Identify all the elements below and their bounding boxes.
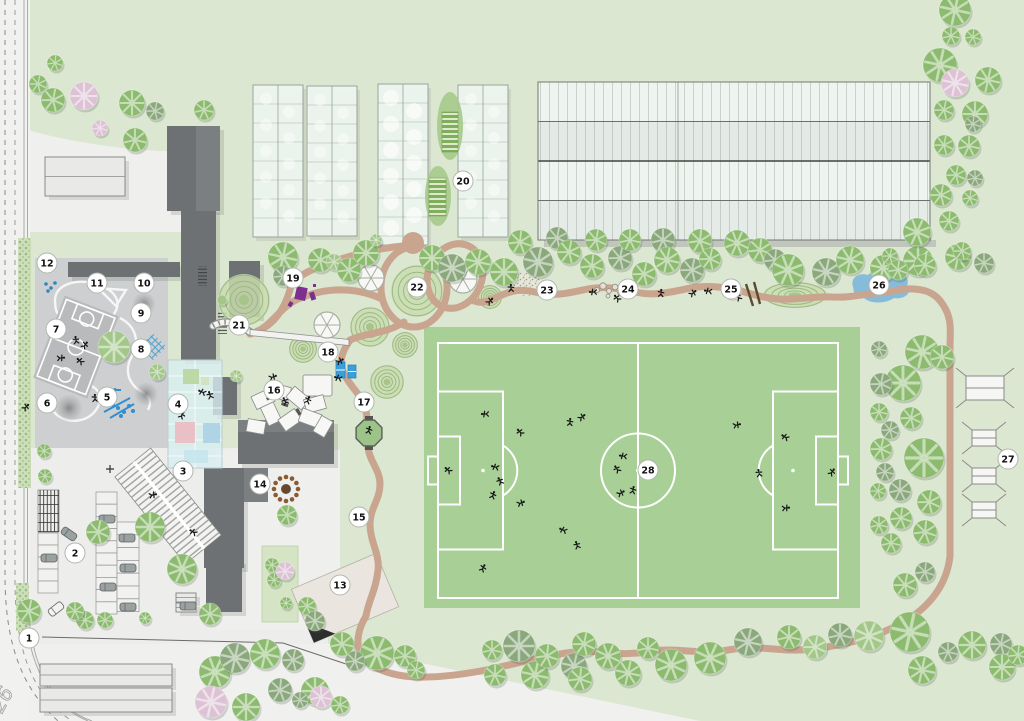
greenhouse (458, 85, 508, 237)
water-play-dots (44, 282, 48, 286)
parked-car (120, 603, 136, 611)
greenhouse (307, 86, 357, 236)
map-marker-27[interactable]: 27 (998, 449, 1018, 469)
svg-text:16: 16 (267, 385, 281, 396)
stair-hatch (198, 266, 207, 286)
svg-text:13: 13 (333, 580, 346, 591)
map-marker-13[interactable]: 13 (330, 575, 350, 595)
svg-text:1: 1 (26, 633, 33, 644)
raised-beds (442, 112, 458, 152)
map-marker-28[interactable]: 28 (638, 460, 658, 480)
fire-pit (282, 485, 291, 494)
map-marker-22[interactable]: 22 (407, 277, 427, 297)
seat-stump (296, 487, 301, 492)
map-marker-11[interactable]: 11 (87, 273, 107, 293)
parking-stall (96, 553, 117, 565)
raised-beds (429, 178, 446, 216)
map-marker-7[interactable]: 7 (46, 319, 66, 339)
seat-stump (290, 476, 295, 481)
map-marker-6[interactable]: 6 (37, 393, 57, 413)
round-pavilion (314, 312, 340, 338)
seat-stump (284, 475, 289, 480)
map-marker-14[interactable]: 14 (250, 474, 270, 494)
svg-text:8: 8 (138, 344, 145, 355)
seat-stump (284, 499, 289, 504)
water-play-dots (53, 281, 57, 285)
parking-stall (38, 569, 58, 581)
parking-stall (38, 533, 58, 545)
svg-text:22: 22 (410, 282, 423, 293)
map-marker-21[interactable]: 21 (229, 315, 249, 335)
parking-stall (96, 565, 117, 577)
map-marker-9[interactable]: 9 (131, 303, 151, 323)
school-building-roof (196, 126, 220, 211)
site-plan-map: 1234567891011121314151617181920212223242… (0, 0, 1024, 721)
atrium-room (175, 422, 195, 443)
svg-text:19: 19 (286, 273, 299, 284)
atrium-room (183, 369, 199, 384)
map-marker-20[interactable]: 20 (453, 171, 473, 191)
parking-stall (96, 590, 117, 602)
large-greenhouse-hall-layer (538, 82, 936, 247)
map-marker-10[interactable]: 10 (134, 273, 154, 293)
map-marker-12[interactable]: 12 (37, 253, 57, 273)
svg-text:26: 26 (872, 280, 886, 291)
site-plan-canvas: 1234567891011121314151617181920212223242… (0, 0, 1024, 721)
parking-stall (117, 573, 139, 586)
greenhouse (378, 84, 428, 249)
boulder (606, 294, 610, 298)
map-marker-15[interactable]: 15 (349, 507, 369, 527)
svg-text:23: 23 (540, 285, 553, 296)
atrium-room (184, 450, 208, 463)
parked-car (41, 554, 57, 562)
map-marker-5[interactable]: 5 (97, 387, 117, 407)
atrium-room (201, 377, 209, 385)
map-marker-16[interactable]: 16 (264, 380, 284, 400)
seat-stump (290, 497, 295, 502)
map-marker-25[interactable]: 25 (721, 279, 741, 299)
parking-stall (96, 492, 117, 504)
svg-text:27: 27 (1001, 454, 1014, 465)
outdoor-stage (303, 375, 332, 396)
parked-car (120, 564, 136, 572)
svg-text:10: 10 (137, 278, 151, 289)
parking-stall (96, 504, 117, 516)
svg-text:20: 20 (456, 176, 470, 187)
svg-text:5: 5 (104, 392, 111, 403)
svg-text:18: 18 (321, 347, 335, 358)
map-marker-18[interactable]: 18 (318, 342, 338, 362)
seat-stump (278, 476, 283, 481)
map-marker-17[interactable]: 17 (354, 392, 374, 412)
parked-car (100, 583, 116, 591)
svg-text:9: 9 (138, 308, 145, 319)
svg-text:15: 15 (352, 512, 365, 523)
svg-text:28: 28 (641, 465, 655, 476)
svg-text:2: 2 (72, 548, 79, 559)
school-building (68, 262, 180, 277)
grass-mound (370, 365, 404, 399)
seat-stump (294, 493, 299, 498)
parking-stall (117, 586, 139, 599)
parked-car (180, 602, 196, 610)
hedge-strip (18, 238, 31, 488)
svg-text:24: 24 (621, 284, 635, 295)
bike-rack (38, 490, 59, 532)
seat-stump (272, 487, 277, 492)
parked-car (119, 534, 135, 542)
seat-stump (294, 481, 299, 486)
boulder (600, 283, 606, 289)
water-play-dots (46, 289, 50, 293)
svg-text:21: 21 (232, 320, 245, 331)
seat-stump (273, 481, 278, 486)
seat-stump (278, 497, 283, 502)
svg-text:6: 6 (44, 398, 51, 409)
map-marker-4[interactable]: 4 (168, 394, 188, 414)
map-marker-2[interactable]: 2 (65, 543, 85, 563)
map-marker-24[interactable]: 24 (618, 279, 638, 299)
svg-text:12: 12 (40, 258, 53, 269)
parking-stall (38, 581, 58, 593)
svg-text:25: 25 (724, 284, 737, 295)
svg-text:11: 11 (90, 278, 103, 289)
boulder (612, 284, 618, 290)
map-marker-3[interactable]: 3 (173, 461, 193, 481)
svg-text:3: 3 (180, 466, 187, 477)
sand-crater (55, 394, 83, 422)
school-building (204, 468, 244, 568)
svg-text:7: 7 (53, 324, 60, 335)
greenhouse (253, 85, 303, 237)
greenhouses-layer (253, 84, 511, 249)
water-play-dots (49, 286, 53, 290)
grass-mound (392, 332, 418, 358)
svg-text:14: 14 (253, 479, 267, 490)
play-sculpture (313, 284, 316, 287)
seat-stump (273, 493, 278, 498)
atrium-room (203, 423, 220, 443)
map-marker-1[interactable]: 1 (19, 628, 39, 648)
map-marker-19[interactable]: 19 (283, 268, 303, 288)
canopy-table (246, 419, 266, 435)
svg-text:4: 4 (175, 399, 182, 410)
map-marker-8[interactable]: 8 (131, 339, 151, 359)
map-marker-23[interactable]: 23 (537, 280, 557, 300)
sand-crater (134, 382, 158, 406)
boulder (607, 289, 612, 294)
map-marker-26[interactable]: 26 (869, 275, 889, 295)
svg-text:17: 17 (357, 397, 370, 408)
parking-stall (117, 548, 139, 561)
